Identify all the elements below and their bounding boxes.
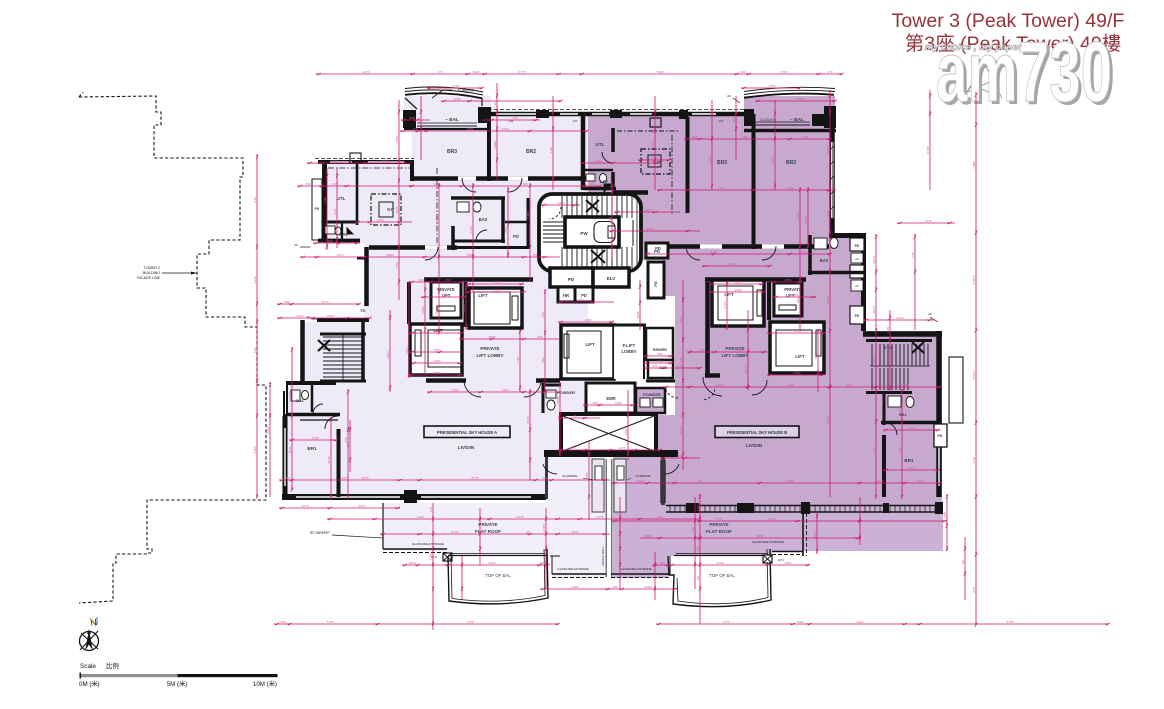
svg-text:7125: 7125 <box>327 620 334 624</box>
svg-text:2650: 2650 <box>434 348 441 352</box>
svg-text:3670: 3670 <box>359 504 366 508</box>
svg-text:175: 175 <box>412 127 417 131</box>
svg-text:TOP OF BAL: TOP OF BAL <box>485 573 511 578</box>
svg-text:2350: 2350 <box>434 359 441 363</box>
svg-text:BA2: BA2 <box>820 258 829 263</box>
svg-text:GLASS BALUSTRADE: GLASS BALUSTRADE <box>557 567 588 571</box>
svg-text:319.5: 319.5 <box>872 306 876 314</box>
svg-text:AF: AF <box>928 312 932 316</box>
svg-text:280: 280 <box>537 335 542 339</box>
svg-text:PD: PD <box>938 434 943 438</box>
svg-text:6790: 6790 <box>1007 620 1014 624</box>
svg-text:4.565: 4.565 <box>493 141 497 149</box>
svg-text:2.180: 2.180 <box>429 552 433 560</box>
svg-text:7.50: 7.50 <box>516 357 520 363</box>
svg-text:1860: 1860 <box>624 428 628 435</box>
svg-text:98: 98 <box>696 576 700 580</box>
svg-text:200: 200 <box>512 116 517 120</box>
svg-text:2.36: 2.36 <box>696 505 700 511</box>
svg-text:LIFT: LIFT <box>478 293 488 298</box>
svg-text:3425: 3425 <box>473 70 480 74</box>
svg-text:800: 800 <box>284 300 289 304</box>
svg-text:2.100: 2.100 <box>462 304 466 312</box>
svg-text:2120: 2120 <box>787 383 794 387</box>
svg-text:470: 470 <box>827 70 832 74</box>
svg-text:6775: 6775 <box>472 476 479 480</box>
svg-text:3700: 3700 <box>781 70 788 74</box>
svg-text:7450: 7450 <box>452 388 459 392</box>
svg-text:2475: 2475 <box>619 446 626 450</box>
svg-text:3.900: 3.900 <box>253 446 257 454</box>
svg-text:4725: 4725 <box>521 182 528 186</box>
svg-text:3250: 3250 <box>572 585 579 589</box>
svg-text:ELV: ELV <box>607 276 617 281</box>
svg-text:2.58: 2.58 <box>679 357 683 363</box>
svg-text:7900: 7900 <box>657 70 664 74</box>
svg-text:1400: 1400 <box>615 401 622 405</box>
svg-text:PD: PD <box>361 309 366 313</box>
svg-text:1750: 1750 <box>769 84 776 88</box>
svg-text:200: 200 <box>917 479 922 483</box>
svg-text:2.100: 2.100 <box>723 301 727 309</box>
svg-text:630: 630 <box>692 135 697 139</box>
svg-text:BA2: BA2 <box>479 217 488 222</box>
svg-text:250: 250 <box>699 348 704 352</box>
svg-text:LAV: LAV <box>600 179 608 184</box>
svg-text:am730: am730 <box>936 25 1112 120</box>
svg-text:8.20: 8.20 <box>253 347 257 353</box>
svg-text:1660: 1660 <box>297 314 304 318</box>
svg-text:1675: 1675 <box>886 366 890 373</box>
svg-text:150: 150 <box>532 253 537 257</box>
svg-text:150: 150 <box>284 476 289 480</box>
svg-text:4043: 4043 <box>327 456 331 463</box>
svg-text:2900: 2900 <box>266 426 270 433</box>
svg-text:4725: 4725 <box>718 186 725 190</box>
svg-text:2850: 2850 <box>489 335 496 339</box>
svg-text:3.110: 3.110 <box>253 276 257 284</box>
svg-text:284.0: 284.0 <box>405 346 409 354</box>
svg-text:9.35: 9.35 <box>253 197 257 203</box>
svg-text:3120: 3120 <box>730 262 737 266</box>
svg-text:1150: 1150 <box>467 127 474 131</box>
svg-text:9.35: 9.35 <box>972 587 976 593</box>
svg-text:2400: 2400 <box>395 206 399 213</box>
svg-text:BR3: BR3 <box>717 160 727 166</box>
svg-text:BR1: BR1 <box>307 446 317 451</box>
svg-text:250: 250 <box>445 278 450 282</box>
svg-text:2650: 2650 <box>494 280 501 284</box>
svg-text:8.15.0: 8.15.0 <box>972 370 976 379</box>
svg-text:CLADDING: CLADDING <box>760 118 777 122</box>
svg-text:BR3: BR3 <box>447 149 457 155</box>
svg-text:AW: AW <box>719 119 724 123</box>
svg-text:PRIVATE: PRIVATE <box>709 522 728 527</box>
svg-text:230.5: 230.5 <box>872 256 876 264</box>
svg-text:2650: 2650 <box>494 288 501 292</box>
svg-text:6150: 6150 <box>897 316 904 320</box>
svg-text:2300: 2300 <box>647 227 654 231</box>
svg-text:2475: 2475 <box>517 515 524 519</box>
svg-text:6920: 6920 <box>637 479 644 483</box>
svg-text:150: 150 <box>542 476 547 480</box>
svg-text:1800: 1800 <box>419 278 426 282</box>
svg-text:4100: 4100 <box>797 620 804 624</box>
svg-text:1320: 1320 <box>886 326 890 333</box>
svg-text:3480: 3480 <box>652 156 659 160</box>
svg-text:2.36: 2.36 <box>972 457 976 463</box>
svg-text:1072: 1072 <box>847 383 854 387</box>
svg-text:75.0: 75.0 <box>504 227 508 233</box>
svg-text:200: 200 <box>659 561 664 565</box>
svg-text:PD: PD <box>653 281 658 287</box>
svg-text:2880: 2880 <box>735 288 742 292</box>
svg-text:1300: 1300 <box>502 388 509 392</box>
svg-text:FLAT ROOF: FLAT ROOF <box>706 529 732 534</box>
svg-text:CLADDING: CLADDING <box>458 89 475 93</box>
svg-text:2680: 2680 <box>737 348 744 352</box>
svg-text:1800: 1800 <box>442 293 449 297</box>
svg-text:2475: 2475 <box>597 515 604 519</box>
svg-text:200: 200 <box>657 515 662 519</box>
svg-text:4700: 4700 <box>489 561 496 565</box>
svg-text:GLASS BALUSTRADE: GLASS BALUSTRADE <box>620 567 651 571</box>
svg-text:2675: 2675 <box>909 466 916 470</box>
svg-text:1300: 1300 <box>377 218 384 222</box>
svg-text:2725: 2725 <box>312 436 319 440</box>
svg-text:1090: 1090 <box>797 97 804 101</box>
svg-text:4650: 4650 <box>757 534 764 538</box>
svg-text:2475: 2475 <box>569 446 576 450</box>
svg-text:6330: 6330 <box>826 146 830 153</box>
svg-text:CLADDING: CLADDING <box>562 474 578 478</box>
svg-text:575.5: 575.5 <box>804 216 808 224</box>
svg-text:PRESIDENTIAL SKY HOUSE B: PRESIDENTIAL SKY HOUSE B <box>727 430 788 435</box>
svg-text:380: 380 <box>541 357 545 362</box>
svg-text:6700: 6700 <box>452 530 459 534</box>
svg-text:LIFT LOBBY: LIFT LOBBY <box>476 353 503 358</box>
svg-text:7225: 7225 <box>715 517 722 521</box>
svg-text:2.36: 2.36 <box>872 447 876 453</box>
svg-text:3780: 3780 <box>802 135 809 139</box>
svg-text:2.38: 2.38 <box>691 527 695 533</box>
svg-text:AF: AF <box>855 284 859 288</box>
svg-text:BUILDING: BUILDING <box>143 271 160 275</box>
svg-text:2350: 2350 <box>435 306 439 313</box>
svg-text:UTL: UTL <box>596 142 605 147</box>
svg-text:LOBBY: LOBBY <box>621 349 636 354</box>
svg-text:2000: 2000 <box>382 159 389 163</box>
svg-text:TOWER 2: TOWER 2 <box>144 266 160 270</box>
svg-text:F.LIFT: F.LIFT <box>623 343 636 348</box>
svg-text:1860: 1860 <box>902 383 909 387</box>
svg-text:1350: 1350 <box>577 298 584 302</box>
svg-text:LIV/DIN: LIV/DIN <box>458 445 475 450</box>
svg-text:3.88: 3.88 <box>943 512 947 518</box>
svg-text:220: 220 <box>539 561 544 565</box>
svg-text:PRIVATE: PRIVATE <box>478 522 497 527</box>
svg-text:1380: 1380 <box>585 318 592 322</box>
svg-text:Scale: Scale <box>80 663 96 670</box>
svg-text:2.30: 2.30 <box>911 252 915 258</box>
svg-text:LIFT LOBBY: LIFT LOBBY <box>721 353 748 358</box>
svg-text:BR2: BR2 <box>786 160 796 166</box>
svg-text:FLAT ROOF: FLAT ROOF <box>475 529 501 534</box>
svg-text:UTL: UTL <box>337 196 346 201</box>
svg-text:3000: 3000 <box>645 534 652 538</box>
svg-text:1.180: 1.180 <box>696 546 700 554</box>
svg-text:294.0: 294.0 <box>872 356 876 364</box>
svg-text:AF: AF <box>294 243 298 247</box>
svg-text:PW: PW <box>580 231 588 236</box>
svg-text:94.90: 94.90 <box>556 396 560 404</box>
svg-text:235.0: 235.0 <box>814 351 818 359</box>
svg-text:POWDER: POWDER <box>643 392 661 397</box>
svg-text:200: 200 <box>305 182 310 186</box>
svg-text:2880: 2880 <box>387 253 394 257</box>
svg-text:1300: 1300 <box>595 159 602 163</box>
svg-text:7170: 7170 <box>723 620 730 624</box>
svg-text:470: 470 <box>437 70 442 74</box>
svg-text:250: 250 <box>409 116 414 120</box>
svg-text:238.0: 238.0 <box>421 306 425 314</box>
svg-text:KIT: KIT <box>387 207 395 212</box>
svg-text:~ BAL: ~ BAL <box>790 117 804 123</box>
svg-text:LIFT: LIFT <box>585 342 595 347</box>
svg-text:3780: 3780 <box>787 479 794 483</box>
svg-text:7125: 7125 <box>467 620 474 624</box>
svg-text:45: 45 <box>573 414 577 418</box>
svg-text:600: 600 <box>657 359 662 363</box>
svg-text:20: 20 <box>526 530 530 534</box>
svg-text:FACADE LINE: FACADE LINE <box>137 276 161 280</box>
svg-text:7125: 7125 <box>417 515 424 519</box>
svg-text:3280: 3280 <box>645 585 652 589</box>
svg-text:AF: AF <box>727 94 731 98</box>
svg-text:4.180: 4.180 <box>469 226 473 234</box>
svg-text:7.50: 7.50 <box>541 312 545 318</box>
svg-text:575.5: 575.5 <box>796 211 800 219</box>
svg-text:BR2: BR2 <box>526 149 536 155</box>
svg-text:AF: AF <box>855 257 859 261</box>
svg-text:2.605: 2.605 <box>435 216 439 224</box>
svg-text:CLADDING: CLADDING <box>635 474 651 478</box>
svg-text:4.565: 4.565 <box>395 136 399 144</box>
svg-text:LIV/DIN: LIV/DIN <box>746 443 763 448</box>
svg-text:4043: 4043 <box>288 446 292 453</box>
svg-text:2350: 2350 <box>434 371 441 375</box>
svg-text:比例: 比例 <box>106 661 119 670</box>
svg-text:LAV: LAV <box>340 232 348 237</box>
svg-text:98: 98 <box>961 560 965 564</box>
svg-text:1750: 1750 <box>453 84 460 88</box>
svg-text:98.0: 98.0 <box>796 297 800 303</box>
svg-text:3780: 3780 <box>787 186 794 190</box>
svg-text:STO: STO <box>884 346 892 350</box>
svg-text:8320: 8320 <box>717 383 724 387</box>
svg-text:200: 200 <box>612 585 617 589</box>
svg-text:7.46: 7.46 <box>493 102 497 108</box>
svg-text:2.56: 2.56 <box>323 197 327 203</box>
svg-text:290: 290 <box>740 70 745 74</box>
svg-text:900: 900 <box>327 239 332 243</box>
svg-text:750: 750 <box>395 262 399 267</box>
svg-text:my choice , my paper: my choice , my paper <box>925 42 1023 53</box>
svg-text:TOP OF BAL: TOP OF BAL <box>709 573 735 578</box>
svg-text:PD: PD <box>513 234 519 239</box>
svg-text:0M (米): 0M (米) <box>79 680 100 688</box>
svg-text:GLASS BALUSTRADE: GLASS BALUSTRADE <box>752 540 784 544</box>
svg-text:3.770: 3.770 <box>771 156 775 164</box>
svg-text:2650: 2650 <box>735 280 742 284</box>
svg-text:87.5: 87.5 <box>898 407 902 413</box>
svg-text:600: 600 <box>652 364 657 368</box>
svg-text:5M (米): 5M (米) <box>167 680 188 688</box>
svg-text:2.385: 2.385 <box>542 524 546 532</box>
svg-text:BR1: BR1 <box>904 458 914 463</box>
svg-text:900: 900 <box>592 401 597 405</box>
svg-text:2100: 2100 <box>558 201 565 205</box>
svg-text:~ BAL: ~ BAL <box>445 117 459 123</box>
svg-text:PD: PD <box>855 244 860 248</box>
svg-text:9100: 9100 <box>711 250 718 254</box>
svg-text:2075: 2075 <box>302 504 309 508</box>
svg-text:1955: 1955 <box>327 314 334 318</box>
svg-text:4100: 4100 <box>857 620 864 624</box>
svg-text:50: 50 <box>698 479 702 483</box>
svg-text:GLASS BALUSTRADE: GLASS BALUSTRADE <box>412 542 444 546</box>
svg-text:PD: PD <box>855 314 860 318</box>
svg-text:3645: 3645 <box>636 311 640 318</box>
svg-text:150: 150 <box>346 442 350 447</box>
svg-text:4.880: 4.880 <box>972 161 976 169</box>
svg-text:2350: 2350 <box>802 250 809 254</box>
svg-text:200: 200 <box>589 182 594 186</box>
svg-text:PD: PD <box>315 207 320 211</box>
svg-text:1245: 1245 <box>925 219 932 223</box>
svg-text:4775: 4775 <box>519 70 526 74</box>
svg-text:4.180: 4.180 <box>526 211 530 219</box>
svg-text:PRIVATE: PRIVATE <box>784 287 802 292</box>
svg-text:3000: 3000 <box>572 530 579 534</box>
svg-text:AP II: AP II <box>778 558 784 562</box>
svg-text:1.025: 1.025 <box>826 211 830 219</box>
svg-text:PRESIDENTIAL SKY HOUSE A: PRESIDENTIAL SKY HOUSE A <box>437 430 498 435</box>
svg-text:3480: 3480 <box>645 208 652 212</box>
svg-text:978: 978 <box>344 437 348 442</box>
svg-text:6.330: 6.330 <box>926 146 930 154</box>
svg-text:AW: AW <box>573 119 578 123</box>
svg-text:294.0: 294.0 <box>744 366 748 374</box>
svg-text:280: 280 <box>732 117 736 122</box>
svg-text:1800: 1800 <box>785 278 792 282</box>
svg-text:175: 175 <box>429 507 433 512</box>
svg-text:3000: 3000 <box>769 517 776 521</box>
svg-text:2005: 2005 <box>813 531 817 538</box>
svg-text:4470: 4470 <box>363 70 370 74</box>
svg-text:235.0: 235.0 <box>826 296 830 304</box>
svg-text:PD: PD <box>655 246 661 251</box>
svg-text:2675: 2675 <box>877 479 884 483</box>
svg-text:180: 180 <box>742 135 747 139</box>
svg-text:3700: 3700 <box>502 127 509 131</box>
svg-text:2035: 2035 <box>826 416 830 423</box>
svg-text:200: 200 <box>332 159 337 163</box>
svg-text:PD: PD <box>568 277 575 282</box>
svg-text:284.0: 284.0 <box>386 351 390 359</box>
svg-text:1890: 1890 <box>409 561 416 565</box>
svg-text:10M (米): 10M (米) <box>253 680 277 688</box>
svg-text:1473: 1473 <box>337 253 344 257</box>
svg-text:7.05: 7.05 <box>333 209 337 215</box>
svg-text:98.5: 98.5 <box>679 317 683 323</box>
svg-text:2.58: 2.58 <box>608 217 612 223</box>
svg-text:3178: 3178 <box>526 416 530 423</box>
svg-text:RC PARAPET: RC PARAPET <box>310 531 330 535</box>
svg-text:FENCE WALL: FENCE WALL <box>601 546 605 565</box>
svg-text:PRIVATE: PRIVATE <box>480 346 499 351</box>
svg-text:4700: 4700 <box>717 561 724 565</box>
svg-text:1800: 1800 <box>792 293 799 297</box>
svg-text:480: 480 <box>657 352 662 356</box>
svg-text:150: 150 <box>585 472 589 477</box>
svg-text:3470: 3470 <box>322 300 329 304</box>
svg-text:1090: 1090 <box>454 97 461 101</box>
svg-text:4.750: 4.750 <box>708 156 712 164</box>
svg-text:3.46: 3.46 <box>898 447 902 453</box>
svg-text:BA1: BA1 <box>296 399 304 403</box>
svg-text:2350: 2350 <box>794 371 801 375</box>
svg-text:4.88.5: 4.88.5 <box>972 275 976 284</box>
svg-text:3718: 3718 <box>679 426 683 433</box>
svg-text:4.60: 4.60 <box>651 142 655 148</box>
svg-text:1475: 1475 <box>332 182 339 186</box>
svg-text:1955: 1955 <box>785 561 792 565</box>
svg-text:380: 380 <box>280 620 285 624</box>
svg-text:2425: 2425 <box>909 426 916 430</box>
svg-text:1020: 1020 <box>288 391 292 398</box>
svg-text:3670: 3670 <box>362 476 369 480</box>
svg-text:1.90: 1.90 <box>549 147 553 153</box>
svg-text:HR: HR <box>563 293 569 298</box>
svg-text:LIFT: LIFT <box>724 292 734 297</box>
svg-text:LIFT: LIFT <box>795 354 805 359</box>
